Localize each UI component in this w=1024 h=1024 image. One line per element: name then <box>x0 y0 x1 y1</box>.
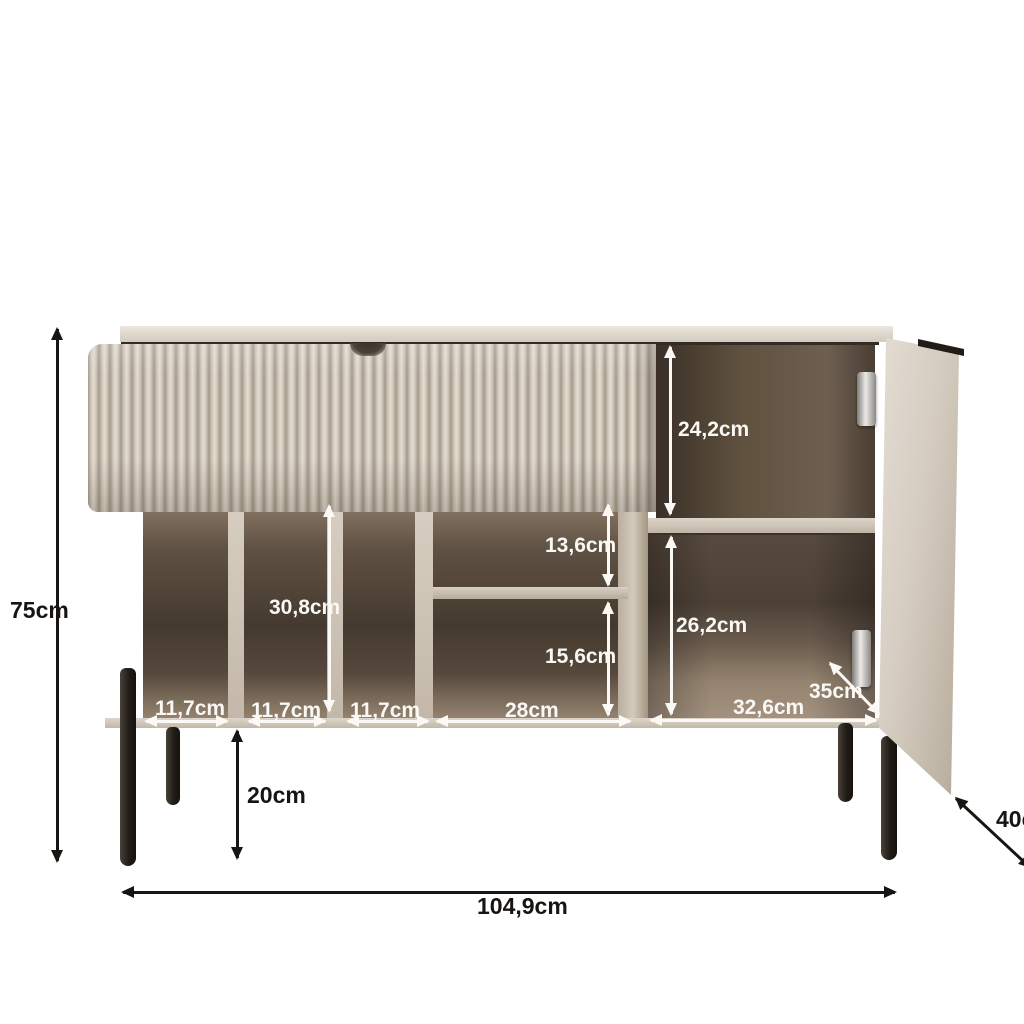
door-hinge-top <box>857 372 876 426</box>
dim-label-total-height: 75cm <box>10 597 69 624</box>
dim-arrow-total-height <box>56 329 59 861</box>
leg-back-right <box>838 723 853 802</box>
fluted-drawer-front <box>88 344 656 512</box>
leg-front-left <box>120 668 136 866</box>
open-slot-3 <box>343 512 415 718</box>
dim-arrow-right-upper-height <box>669 347 672 514</box>
open-door-panel <box>875 335 967 800</box>
dim-label-right-lower-height: 26,2cm <box>676 614 747 638</box>
door-hinge-bottom <box>852 630 871 687</box>
dim-label-total-width: 104,9cm <box>477 893 568 920</box>
right-shelf-shadow <box>648 533 875 535</box>
center-partition <box>618 512 648 718</box>
vertical-divider-1 <box>228 512 244 718</box>
dim-arrow-leg-height <box>236 731 239 858</box>
dim-label-slot-2-width: 11,7cm <box>251 699 321 723</box>
leg-back-left <box>166 727 180 805</box>
dim-label-open-shelf-height: 30,8cm <box>269 596 340 620</box>
dim-label-middle-upper-height: 13,6cm <box>545 534 616 558</box>
dim-label-right-width: 32,6cm <box>733 696 804 720</box>
dim-label-slot-3-width: 11,7cm <box>350 699 420 723</box>
dim-label-slot-1-width: 11,7cm <box>155 697 225 721</box>
vertical-divider-3 <box>415 512 433 718</box>
dim-label-total-depth: 40cm <box>996 806 1024 833</box>
dim-label-middle-width: 28cm <box>505 699 559 723</box>
dim-label-leg-height: 20cm <box>247 782 306 809</box>
open-slot-1 <box>143 512 228 718</box>
cabinet-top <box>120 326 893 342</box>
dim-label-interior-depth: 35cm <box>809 680 863 704</box>
dim-label-middle-lower-height: 15,6cm <box>545 645 616 669</box>
middle-shelf <box>433 587 628 599</box>
right-shelf <box>648 518 875 533</box>
leg-front-right <box>881 736 897 860</box>
dim-arrow-right-lower-height <box>670 537 673 714</box>
dim-label-right-upper-height: 24,2cm <box>678 418 749 442</box>
product-dimension-diagram: 24,2cm 13,6cm 15,6cm 30,8cm 26,2cm 11,7c… <box>0 0 1024 1024</box>
